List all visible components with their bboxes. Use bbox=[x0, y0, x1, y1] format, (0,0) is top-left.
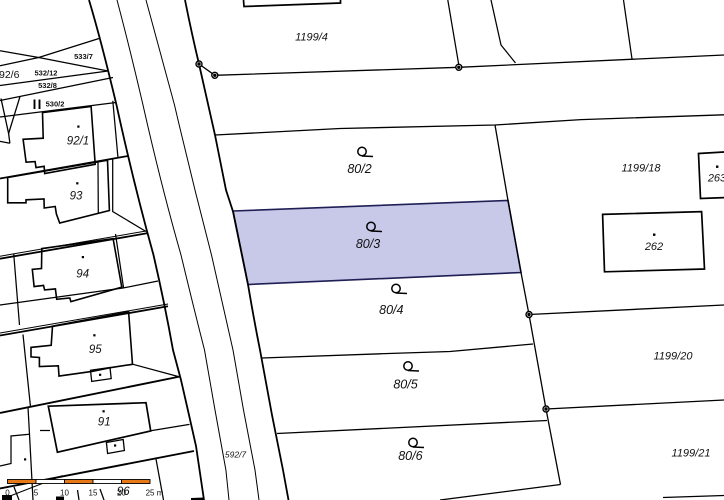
svg-text:93: 93 bbox=[70, 191, 83, 203]
svg-text:530/2: 530/2 bbox=[46, 99, 65, 108]
svg-text:1199/18: 1199/18 bbox=[622, 163, 662, 175]
svg-text:25 m: 25 m bbox=[146, 489, 164, 498]
svg-text:0: 0 bbox=[5, 489, 10, 498]
svg-text:262: 262 bbox=[644, 241, 663, 253]
svg-text:532/8: 532/8 bbox=[38, 81, 57, 90]
svg-text:263: 263 bbox=[707, 173, 724, 185]
svg-text:80/3: 80/3 bbox=[356, 237, 380, 251]
svg-text:95: 95 bbox=[89, 344, 102, 356]
svg-text:92/1: 92/1 bbox=[67, 136, 89, 148]
svg-text:80/6: 80/6 bbox=[398, 449, 422, 463]
svg-text:80/5: 80/5 bbox=[393, 378, 417, 392]
svg-text:5: 5 bbox=[34, 489, 39, 498]
svg-text:15: 15 bbox=[89, 489, 98, 498]
svg-text:10: 10 bbox=[60, 489, 69, 498]
svg-text:1199/4: 1199/4 bbox=[295, 32, 328, 44]
svg-text:80/2: 80/2 bbox=[347, 162, 371, 176]
svg-text:80/4: 80/4 bbox=[379, 303, 403, 317]
svg-text:592/7: 592/7 bbox=[225, 450, 247, 460]
svg-text:94: 94 bbox=[76, 268, 89, 280]
svg-text:533/7: 533/7 bbox=[74, 52, 93, 61]
svg-text:92/6: 92/6 bbox=[0, 69, 20, 81]
svg-text:532/12: 532/12 bbox=[35, 68, 58, 77]
svg-text:91: 91 bbox=[98, 416, 111, 428]
svg-text:96: 96 bbox=[117, 486, 130, 498]
svg-text:1199/20: 1199/20 bbox=[654, 351, 694, 363]
svg-text:1199/21: 1199/21 bbox=[672, 448, 711, 460]
